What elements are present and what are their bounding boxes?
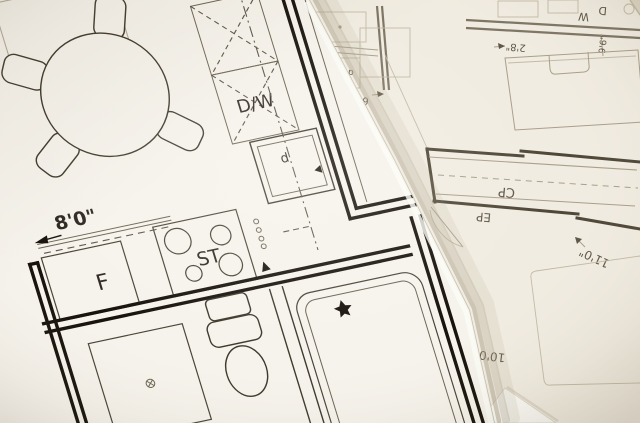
floorplan-photo: W D 2'8" 9'6" — [0, 0, 640, 423]
vignette-overlay — [0, 0, 640, 423]
